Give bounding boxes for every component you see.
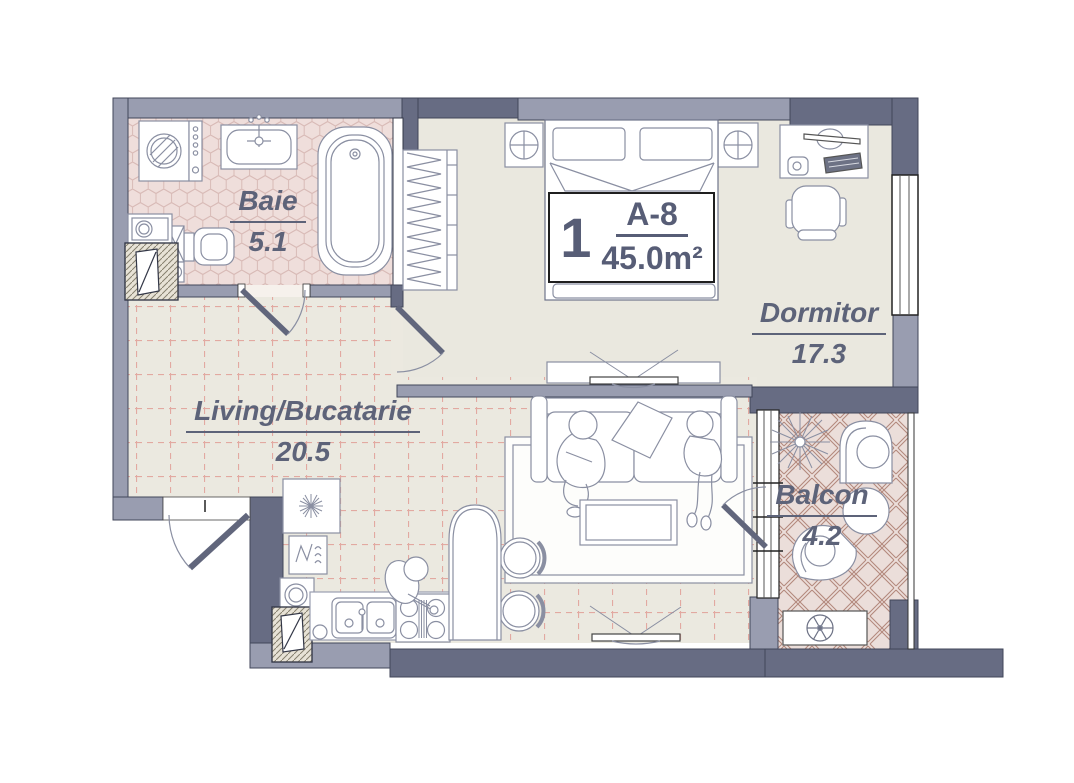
stool-bottom bbox=[499, 591, 543, 631]
wall-entry-left bbox=[113, 497, 163, 520]
unit-info: A-8 45.0m² bbox=[601, 197, 702, 278]
room-label-baie: Baie 5.1 bbox=[188, 186, 348, 258]
wall-bottom-left bbox=[250, 643, 390, 668]
wall-left bbox=[113, 98, 128, 520]
wall-bedroom-balcony bbox=[750, 387, 918, 413]
wall-divider-block bbox=[391, 285, 403, 307]
entrance-door bbox=[169, 515, 248, 568]
room-name-baie: Baie bbox=[230, 186, 305, 223]
wardrobe bbox=[403, 150, 457, 290]
kitchen-shaft bbox=[272, 607, 312, 662]
vent-unit bbox=[283, 479, 340, 533]
wall-balcony-door-pillar bbox=[750, 597, 778, 649]
bath-door-jamb-right bbox=[303, 284, 310, 297]
floor-plan-svg bbox=[0, 0, 1074, 783]
room-label-balcon: Balcon 4.2 bbox=[752, 480, 892, 552]
mouse bbox=[793, 162, 801, 170]
fridge bbox=[449, 505, 501, 640]
balcony-railing bbox=[908, 413, 914, 649]
unit-code: A-8 bbox=[616, 197, 688, 237]
room-name-living: Living/Bucatarie bbox=[186, 396, 420, 433]
wall-bath-bottom-right bbox=[310, 285, 393, 297]
wall-bedroom-living bbox=[397, 385, 752, 397]
desk bbox=[780, 125, 868, 178]
wall-bath-bedroom-divider bbox=[393, 118, 403, 285]
floor-plan: Baie 5.1 Dormitor 17.3 Living/Bucatarie … bbox=[0, 0, 1074, 783]
coffee-table bbox=[580, 500, 677, 545]
wall-top-dark bbox=[402, 98, 518, 118]
bedroom-window bbox=[892, 175, 918, 315]
wall-right-upper bbox=[892, 98, 918, 175]
nightstand-lamp-right bbox=[718, 123, 758, 167]
kitchen-sink bbox=[332, 598, 396, 638]
washing-machine bbox=[139, 121, 202, 181]
stool-top bbox=[500, 538, 544, 578]
unit-number: 1 bbox=[560, 210, 591, 266]
microwave bbox=[289, 536, 327, 574]
unit-label-box: 1 A-8 45.0m² bbox=[548, 192, 715, 283]
pillow-right bbox=[640, 128, 712, 160]
room-name-dormitor: Dormitor bbox=[752, 298, 886, 335]
wall-bottom-right bbox=[765, 649, 1003, 677]
pillow-left bbox=[553, 128, 625, 160]
entrance-recess bbox=[163, 497, 250, 520]
room-name-balcon: Balcon bbox=[767, 480, 876, 517]
room-area-living: 20.5 bbox=[172, 437, 434, 468]
room-area-dormitor: 17.3 bbox=[734, 339, 904, 370]
unit-area: 45.0m² bbox=[601, 239, 702, 277]
wall-top-mid bbox=[518, 98, 790, 120]
wall-bottom-mid bbox=[390, 649, 765, 677]
room-area-balcon: 4.2 bbox=[752, 521, 892, 552]
bath-corner-unit bbox=[128, 214, 172, 244]
room-label-living: Living/Bucatarie 20.5 bbox=[172, 396, 434, 468]
ac-unit bbox=[783, 611, 867, 645]
nightstand-lamp-left bbox=[505, 123, 543, 167]
balcony-chair-top bbox=[840, 421, 892, 483]
wall-top-dark-drop bbox=[402, 98, 418, 150]
bath-shaft bbox=[125, 243, 178, 300]
room-area-baie: 5.1 bbox=[188, 227, 348, 258]
room-label-dormitor: Dormitor 17.3 bbox=[734, 298, 904, 370]
